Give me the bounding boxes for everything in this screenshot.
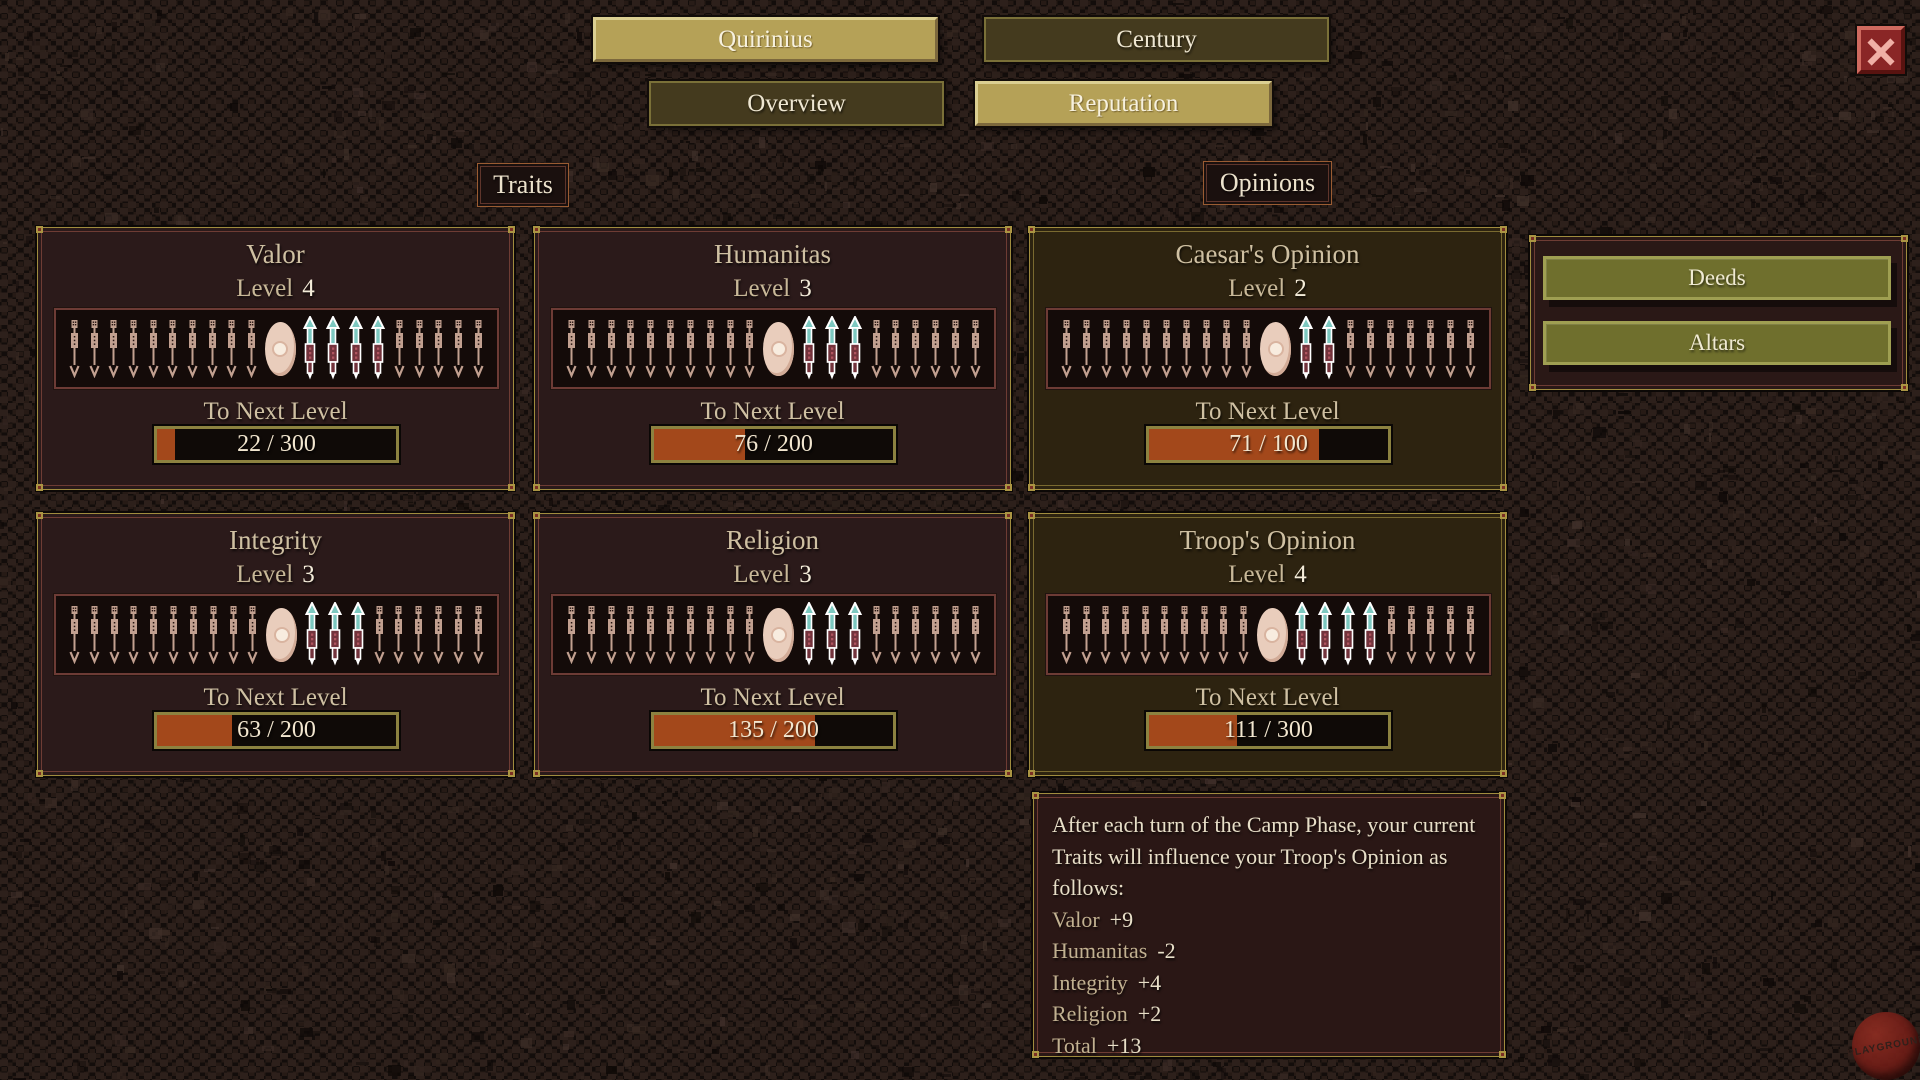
level-slider [1046,308,1491,389]
tab-century[interactable]: Century [984,17,1329,62]
level-slider [551,594,996,675]
corner-ornament [1032,792,1039,799]
corner-ornament [508,512,515,519]
dagger-icon [1198,606,1211,664]
dagger-icon [870,320,883,378]
corner-ornament [1005,484,1012,491]
trait-panel-humanitas: Humanitas Level3 To Next Level 76 / 200 [534,227,1011,490]
dagger-icon [147,606,160,664]
dagger-icon [1424,606,1437,664]
progress-bar: 135 / 200 [651,712,896,749]
dagger-icon [1080,606,1093,664]
dagger-icon [949,320,962,378]
trait-panel-valor: Valor Level4 To Next Level 22 / 300 [37,227,514,490]
dagger-icon [1060,320,1073,378]
dagger-icon [227,606,240,664]
dagger-icon [147,320,160,378]
dagger-icon [127,606,140,664]
corner-ornament [1499,1051,1506,1058]
info-text: After each turn of the Camp Phase, your … [1052,809,1494,1061]
modifier-row: Total+13 [1052,1030,1494,1062]
dagger-icon [245,320,258,378]
dagger-icon [1405,606,1418,664]
dagger-icon [166,320,179,378]
trait-panel-integrity: Integrity Level3 To Next Level 63 / 200 [37,513,514,776]
dagger-icon [392,606,405,664]
dagger-icon [1364,320,1377,378]
panel-level: Level3 [535,561,1010,589]
dagger-icon [452,606,465,664]
corner-ornament [1529,235,1536,242]
panel-title: Troop's Opinion [1030,525,1505,556]
panel-level: Level3 [535,275,1010,303]
panel-title: Religion [535,525,1010,556]
corner-ornament [1500,770,1507,777]
dagger-icon [1158,606,1171,664]
dagger-icon [1139,606,1152,664]
dagger-icon [88,320,101,378]
dagger-icon [1237,606,1250,664]
dagger-icon-highlighted [847,316,863,382]
dagger-icon-highlighted [801,316,817,382]
corner-ornament [36,484,43,491]
dagger-icon [1444,320,1457,378]
next-level-label: To Next Level [535,684,1010,712]
dagger-icon [684,606,697,664]
dagger-icon [127,320,140,378]
corner-ornament [533,484,540,491]
level-slider [551,308,996,389]
side-button-panel: Deeds Altars [1530,236,1907,390]
panel-level: Level4 [1030,561,1505,589]
dagger-icon [969,606,982,664]
playground-watermark: PLAYGROUND [1844,1012,1920,1080]
dagger-icon-highlighted [348,316,364,382]
level-slider [1046,594,1491,675]
dagger-icon [949,606,962,664]
corner-ornament [508,770,515,777]
corner-ornament [1500,484,1507,491]
dagger-icon [585,606,598,664]
dagger-icon [1384,320,1397,378]
dagger-icon [929,320,942,378]
section-label-traits: Traits [477,163,569,207]
progress-bar: 76 / 200 [651,426,896,463]
dagger-icon [704,606,717,664]
dagger-icon-highlighted [1340,602,1356,668]
corner-ornament [508,484,515,491]
dagger-icon-highlighted [1294,602,1310,668]
dagger-icon [1424,320,1437,378]
dagger-icon [704,320,717,378]
trait-panel-religion: Religion Level3 To Next Level 135 / 200 [534,513,1011,776]
opinion-panel-caesar: Caesar's Opinion Level2 To Next Level 71… [1029,227,1506,490]
dagger-icon [1385,606,1398,664]
dagger-icon [1080,320,1093,378]
tab-overview[interactable]: Overview [649,81,944,126]
dagger-icon [929,606,942,664]
dagger-icon [605,606,618,664]
dagger-icon [909,320,922,378]
dagger-icon [664,320,677,378]
dagger-icon-highlighted [1321,316,1337,382]
corner-ornament [1499,792,1506,799]
corner-ornament [1901,235,1908,242]
dagger-icon [412,606,425,664]
dagger-icon [1160,320,1173,378]
dagger-icon [206,320,219,378]
level-slider [54,594,499,675]
dagger-icon [393,320,406,378]
dagger-icon [413,320,426,378]
modifier-row: Valor+9 [1052,904,1494,936]
dagger-icon [1464,320,1477,378]
dagger-icon-highlighted [824,316,840,382]
next-level-label: To Next Level [38,684,513,712]
corner-ornament [1028,770,1035,777]
dagger-icon [724,320,737,378]
corner-ornament [1028,512,1035,519]
next-level-label: To Next Level [535,398,1010,426]
dagger-icon-highlighted [1317,602,1333,668]
progress-text: 22 / 300 [157,429,396,460]
dagger-icon-highlighted [1362,602,1378,668]
dagger-icon [565,606,578,664]
corner-ornament [533,226,540,233]
next-level-label: To Next Level [38,398,513,426]
corner-ornament [1500,512,1507,519]
dagger-icon-highlighted [327,602,343,668]
dagger-icon-highlighted [325,316,341,382]
progress-text: 111 / 300 [1149,715,1388,746]
progress-text: 76 / 200 [654,429,893,460]
dagger-icon [1200,320,1213,378]
progress-text: 63 / 200 [157,715,396,746]
dagger-icon [432,606,445,664]
dagger-icon [889,606,902,664]
dagger-icon [743,606,756,664]
next-level-label: To Next Level [1030,398,1505,426]
close-icon [1861,36,1901,68]
dagger-icon [605,320,618,378]
medallion-icon [1260,322,1291,376]
dagger-icon [1100,320,1113,378]
dagger-icon [186,320,199,378]
corner-ornament [36,770,43,777]
corner-ornament [1028,226,1035,233]
opinion-panel-troop: Troop's Opinion Level4 To Next Level 111… [1029,513,1506,776]
corner-ornament [1028,484,1035,491]
corner-ornament [1032,1051,1039,1058]
dagger-icon [207,606,220,664]
dagger-icon [684,320,697,378]
close-button[interactable] [1857,26,1905,74]
dagger-icon [246,606,259,664]
info-line: After each turn of the Camp Phase, your … [1052,809,1494,841]
progress-text: 71 / 100 [1149,429,1388,460]
panel-level: Level4 [38,275,513,303]
medallion-icon [1257,608,1288,662]
dagger-icon [1060,606,1073,664]
dagger-icon [969,320,982,378]
medallion-icon [763,608,794,662]
dagger-icon [107,320,120,378]
dagger-icon [1464,606,1477,664]
dagger-icon-highlighted [370,316,386,382]
dagger-icon [1119,606,1132,664]
dagger-icon [1140,320,1153,378]
medallion-icon [266,608,297,662]
deeds-button[interactable]: Deeds [1543,256,1891,300]
corner-ornament [1005,770,1012,777]
dagger-icon [167,606,180,664]
corner-ornament [1005,226,1012,233]
dagger-icon [472,320,485,378]
dagger-icon [1120,320,1133,378]
dagger-icon-highlighted [801,602,817,668]
panel-title: Caesar's Opinion [1030,239,1505,270]
next-level-label: To Next Level [1030,684,1505,712]
dagger-icon [644,606,657,664]
dagger-icon [624,606,637,664]
dagger-icon [1220,320,1233,378]
medallion-icon [265,322,296,376]
dagger-icon [187,606,200,664]
progress-bar: 22 / 300 [154,426,399,463]
corner-ornament [508,226,515,233]
dagger-icon [1178,606,1191,664]
progress-bar: 71 / 100 [1146,426,1391,463]
dagger-icon [88,606,101,664]
dagger-icon [585,320,598,378]
corner-ornament [533,512,540,519]
corner-ornament [36,226,43,233]
dagger-icon [452,320,465,378]
dagger-icon [1240,320,1253,378]
level-slider [54,308,499,389]
altars-button[interactable]: Altars [1543,321,1891,365]
dagger-icon [68,320,81,378]
dagger-icon-highlighted [824,602,840,668]
dagger-icon [373,606,386,664]
dagger-icon [889,320,902,378]
corner-ornament [1901,384,1908,391]
dagger-icon [1180,320,1193,378]
corner-ornament [533,770,540,777]
dagger-icon-highlighted [350,602,366,668]
modifier-row: Integrity+4 [1052,967,1494,999]
dagger-icon [472,606,485,664]
dagger-icon [870,606,883,664]
panel-title: Integrity [38,525,513,556]
info-line: follows: [1052,872,1494,904]
info-line: Traits will influence your Troop's Opini… [1052,841,1494,873]
corner-ornament [1005,512,1012,519]
dagger-icon [743,320,756,378]
dagger-icon [664,606,677,664]
dagger-icon [644,320,657,378]
section-label-opinions: Opinions [1203,161,1332,205]
progress-bar: 63 / 200 [154,712,399,749]
medallion-icon [763,322,794,376]
corner-ornament [1500,226,1507,233]
panel-title: Valor [38,239,513,270]
dagger-icon-highlighted [1298,316,1314,382]
tab-quirinius[interactable]: Quirinius [593,17,938,62]
progress-bar: 111 / 300 [1146,712,1391,749]
dagger-icon [1099,606,1112,664]
dagger-icon [1344,320,1357,378]
dagger-icon-highlighted [847,602,863,668]
modifier-row: Religion+2 [1052,998,1494,1030]
dagger-icon [108,606,121,664]
panel-title: Humanitas [535,239,1010,270]
game-screen: Quirinius Century Overview Reputation Tr… [0,0,1920,1080]
tab-reputation[interactable]: Reputation [975,81,1272,126]
dagger-icon [724,606,737,664]
dagger-icon [225,320,238,378]
corner-ornament [1529,384,1536,391]
dagger-icon [1217,606,1230,664]
panel-level: Level3 [38,561,513,589]
progress-text: 135 / 200 [654,715,893,746]
modifier-row: Humanitas-2 [1052,935,1494,967]
dagger-icon [68,606,81,664]
dagger-icon [1404,320,1417,378]
dagger-icon-highlighted [304,602,320,668]
panel-level: Level2 [1030,275,1505,303]
dagger-icon [432,320,445,378]
dagger-icon [565,320,578,378]
info-panel: After each turn of the Camp Phase, your … [1033,793,1505,1057]
dagger-icon [1444,606,1457,664]
dagger-icon [909,606,922,664]
corner-ornament [36,512,43,519]
dagger-icon [624,320,637,378]
dagger-icon-highlighted [302,316,318,382]
